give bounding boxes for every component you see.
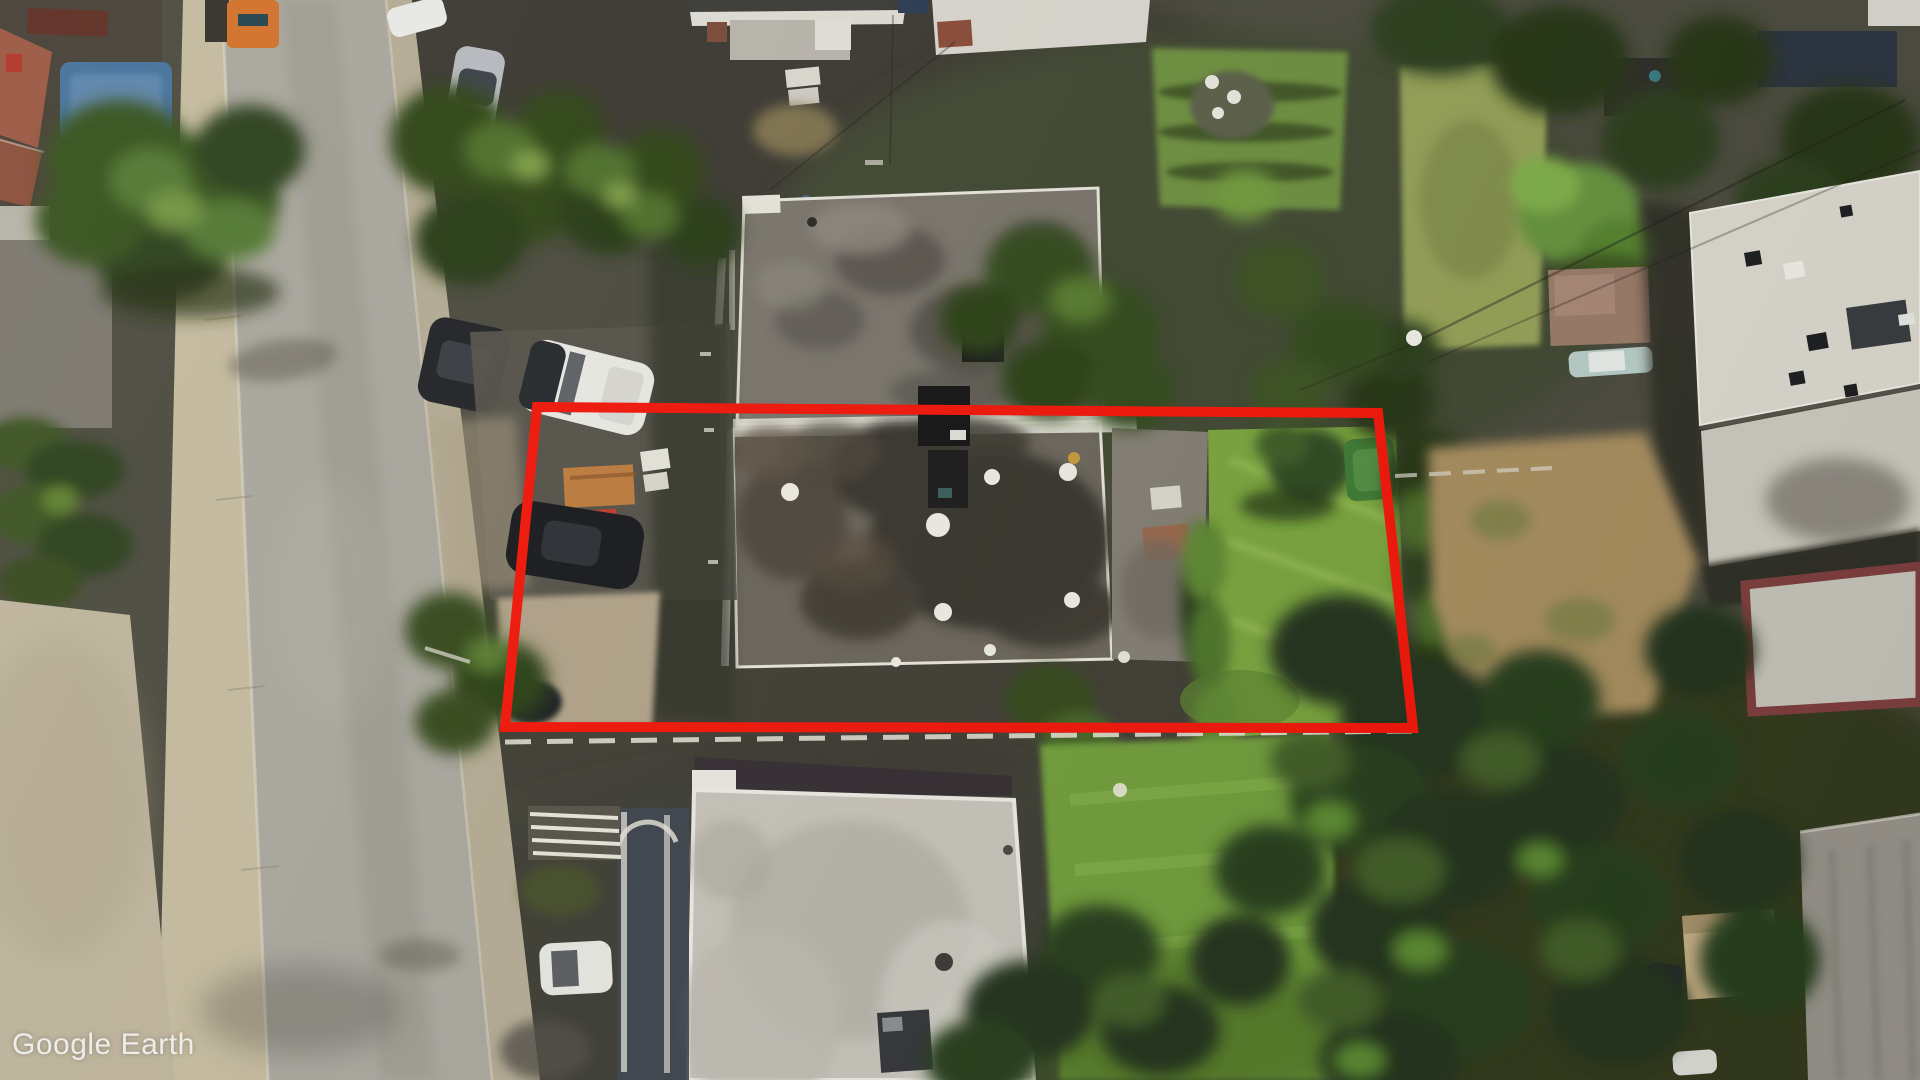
google-earth-watermark: Google Earth	[12, 1028, 195, 1062]
building-roof-east-upper	[1690, 171, 1920, 425]
dark-shed	[1757, 31, 1897, 87]
aerial-imagery	[0, 0, 1920, 1080]
white-car-south	[539, 940, 614, 996]
patio-set	[1190, 71, 1274, 139]
satellite-map-canvas[interactable]: Google Earth	[0, 0, 1920, 1080]
utility-pole-top	[1406, 330, 1422, 346]
stairwell	[617, 808, 689, 1080]
maroon-trim-roof	[1745, 566, 1920, 712]
orange-dumpster	[563, 464, 635, 508]
